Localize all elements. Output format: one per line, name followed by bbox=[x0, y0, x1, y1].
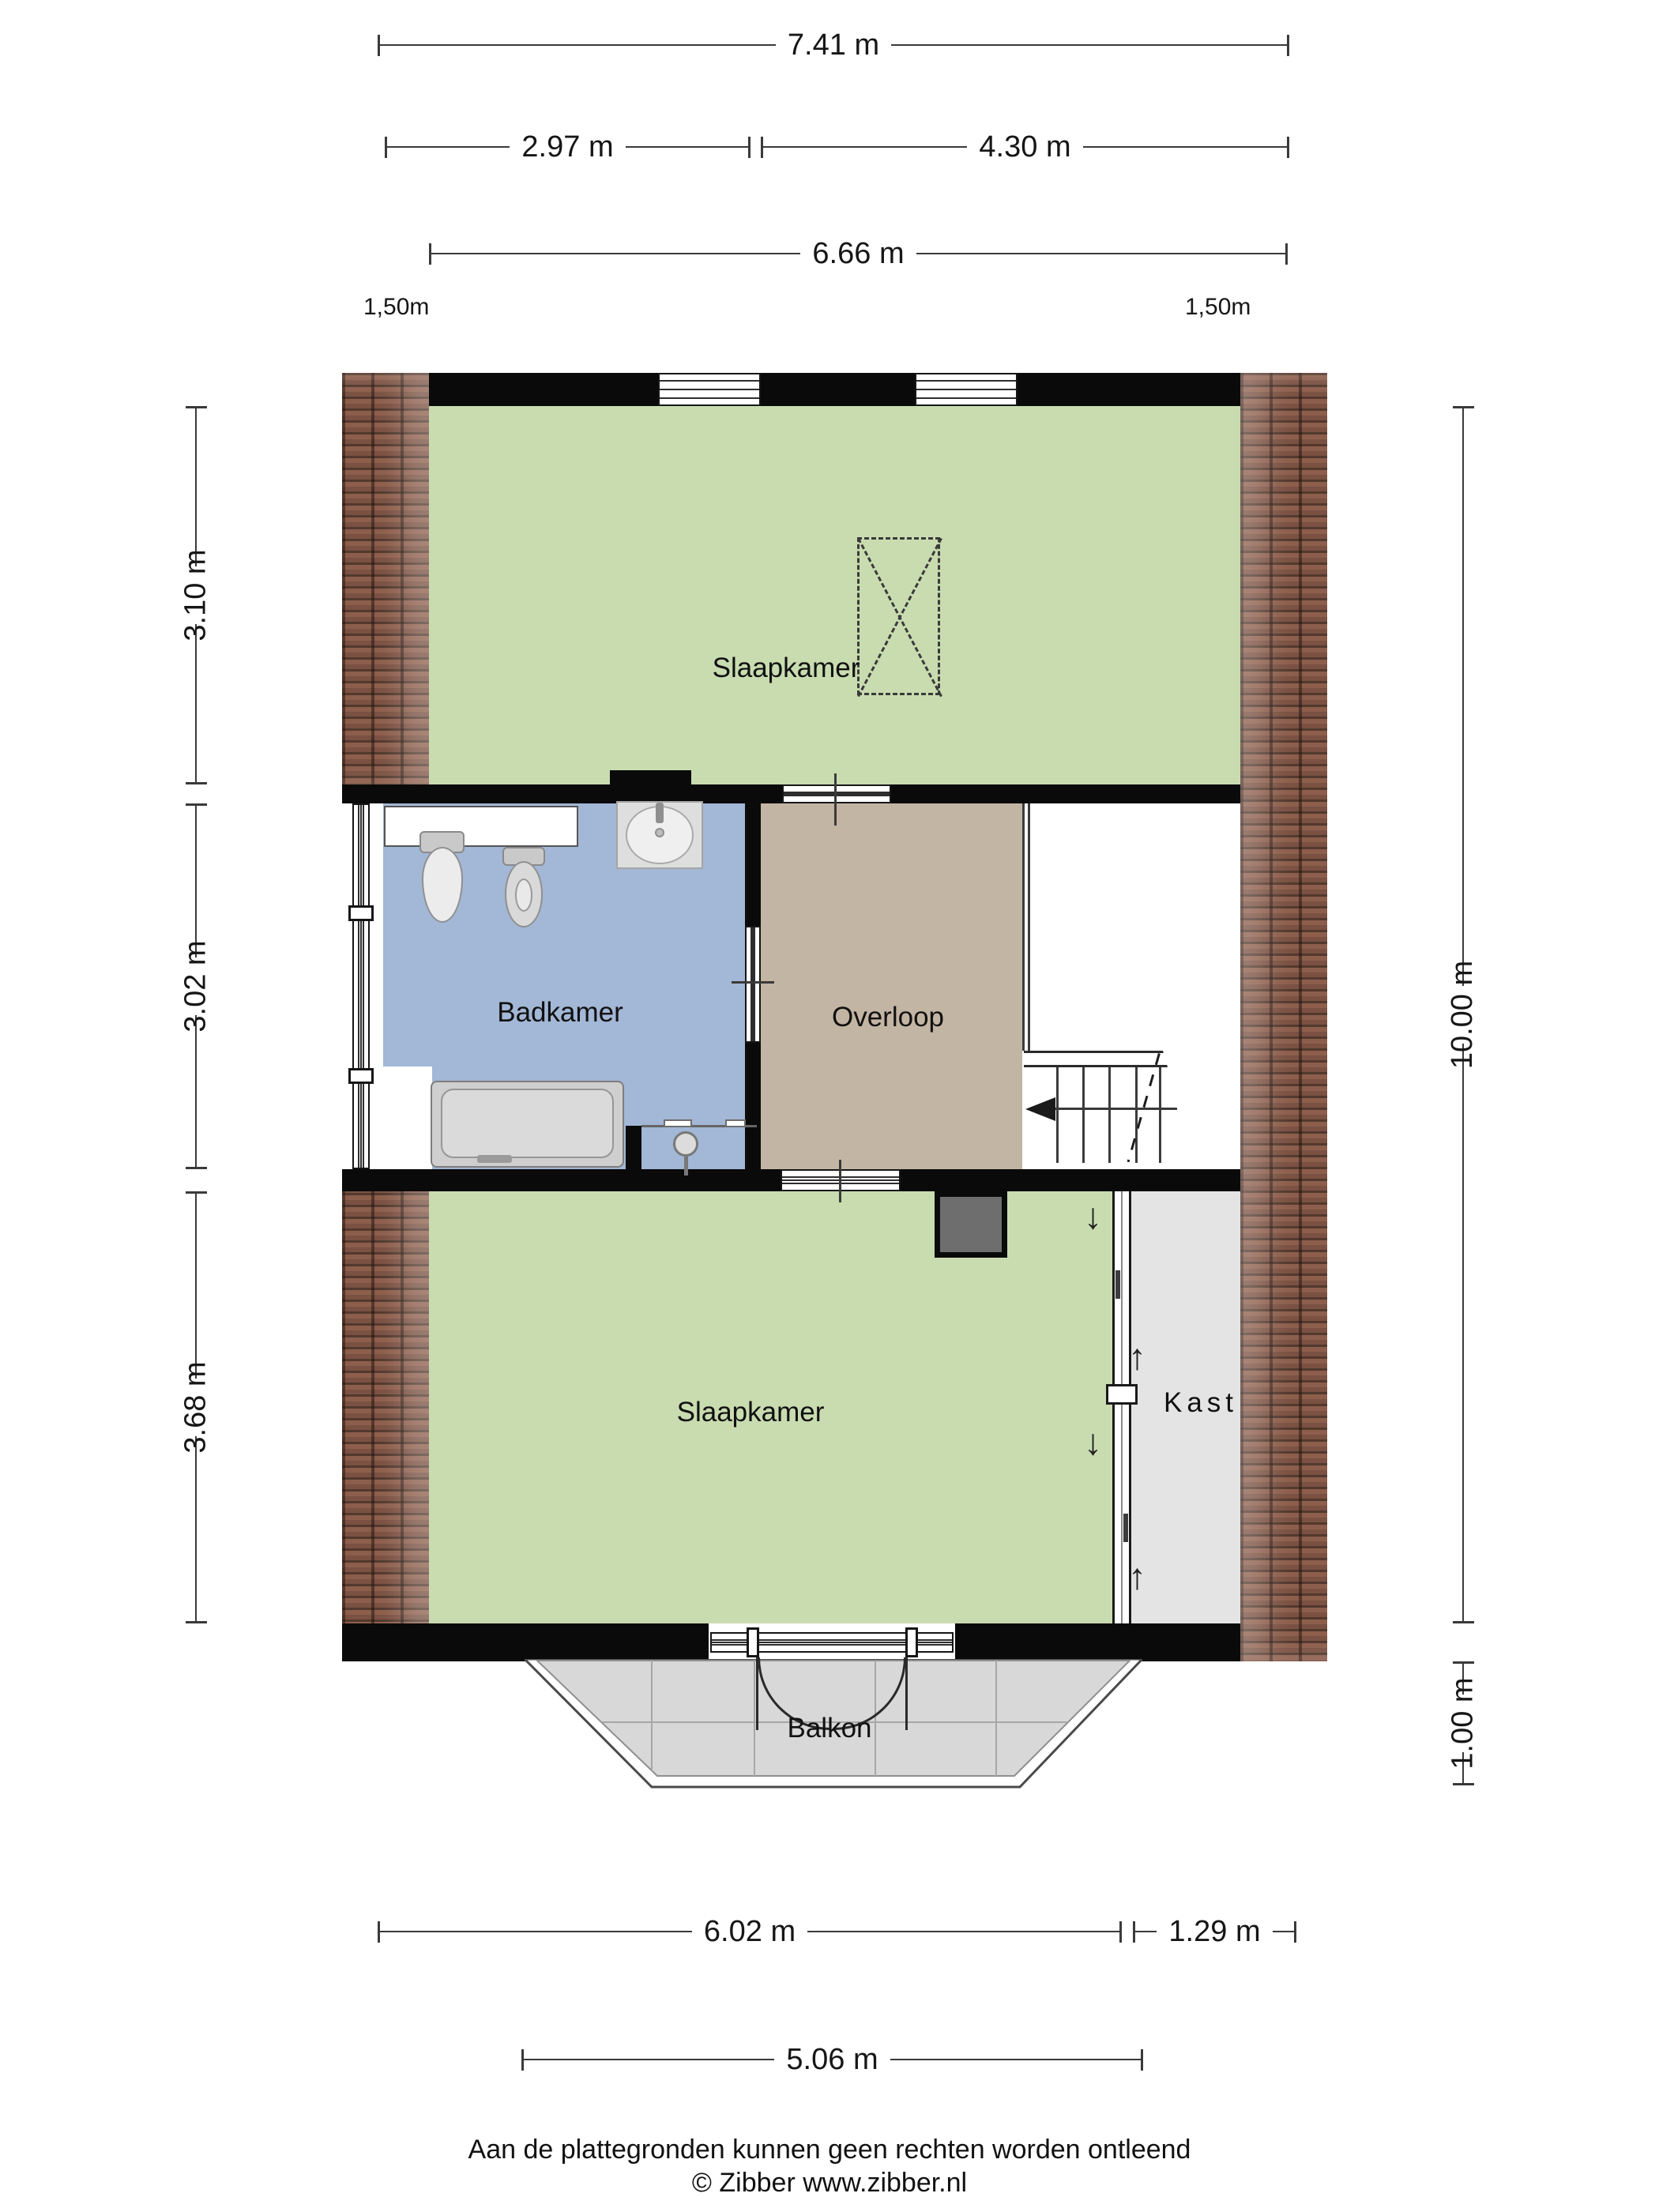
room-label-bedroom-bottom: Slaapkamer bbox=[592, 1397, 908, 1428]
dim-total-width: 7.41 m bbox=[378, 32, 1289, 58]
dim-label: 10.00 m bbox=[1435, 961, 1492, 1069]
wall-interior-2 bbox=[901, 1169, 1240, 1191]
stair-direction-line bbox=[1051, 1108, 1177, 1110]
wall-interior-1 bbox=[891, 784, 1240, 803]
room-label-bathroom: Badkamer bbox=[402, 997, 718, 1029]
window-mullion bbox=[348, 905, 374, 921]
dim-balcony-depth: 1.00 m bbox=[1450, 1661, 1477, 1785]
dim-inner-width: 6.66 m bbox=[429, 240, 1288, 267]
room-label-landing: Overloop bbox=[730, 1002, 1046, 1033]
dim-bottom-width: 6.02 m bbox=[378, 1918, 1122, 1945]
wall-top bbox=[761, 373, 915, 406]
stair-tread bbox=[1056, 1067, 1059, 1163]
wall-bathroom-landing bbox=[745, 1043, 761, 1169]
dim-label: 1.00 m bbox=[1435, 1677, 1492, 1769]
wall-top bbox=[1018, 373, 1240, 406]
wall-bathroom-landing bbox=[745, 803, 761, 926]
dim-left-section-width: 2.97 m bbox=[385, 134, 750, 160]
opening-tick bbox=[834, 773, 837, 826]
window-mullion bbox=[348, 1068, 374, 1084]
dim-bedroom-bottom-depth: 3.68 m bbox=[182, 1191, 209, 1623]
dim-label: 7.41 m bbox=[776, 28, 891, 62]
dim-label: 5.06 m bbox=[774, 2043, 890, 2077]
landing-top-glazing bbox=[782, 784, 891, 803]
wall-bottom bbox=[955, 1623, 1240, 1661]
shower-hose bbox=[684, 1155, 688, 1176]
stair-direction-arrow bbox=[1025, 1097, 1055, 1121]
stair-tread bbox=[1135, 1067, 1138, 1163]
floor-plan-page: 7.41 m 2.97 m 4.30 m 6.66 m 1,50m 1,50m … bbox=[0, 0, 1659, 2212]
wall-interior-2 bbox=[342, 1169, 781, 1191]
stair-tread bbox=[1159, 1067, 1161, 1163]
bathroom-counter bbox=[384, 806, 578, 847]
shower-stub-wall bbox=[626, 1126, 641, 1169]
opening-tick bbox=[732, 981, 774, 984]
wall-interior-1 bbox=[342, 784, 782, 803]
sink-faucet bbox=[656, 803, 664, 823]
footer-disclaimer: Aan de plattegronden kunnen geen rechten… bbox=[0, 2135, 1659, 2165]
bathroom-floor-recess bbox=[383, 1066, 432, 1169]
dim-label: 1.29 m bbox=[1157, 1915, 1272, 1949]
room-label-closet: Kast bbox=[1122, 1387, 1280, 1419]
bathtub-faucet bbox=[477, 1155, 512, 1163]
knee-wall-height-right: 1,50m bbox=[1185, 294, 1251, 321]
bidet-basin bbox=[515, 878, 532, 912]
slide-arrow-up-icon: ↑ bbox=[1128, 1558, 1146, 1594]
room-landing bbox=[761, 803, 1022, 1169]
bathtub-basin bbox=[441, 1089, 614, 1158]
stair-tread bbox=[1082, 1067, 1085, 1163]
dim-label: 6.02 m bbox=[692, 1915, 807, 1949]
dim-right-section-width: 4.30 m bbox=[761, 134, 1289, 160]
roof-brick-left-top bbox=[342, 373, 429, 791]
stair-handrail bbox=[1024, 1053, 1195, 1067]
chimney bbox=[935, 1191, 1007, 1258]
door-frame-mullion bbox=[905, 1627, 918, 1657]
room-bedroom-top bbox=[429, 406, 1240, 784]
sliding-door-handle bbox=[1115, 1270, 1120, 1299]
dim-label: 4.30 m bbox=[967, 130, 1082, 164]
dim-label: 6.66 m bbox=[800, 237, 916, 271]
wall-top bbox=[429, 373, 658, 406]
window-top-right bbox=[915, 373, 1018, 406]
footer-copyright: © Zibber www.zibber.nl bbox=[0, 2168, 1659, 2199]
door-frame-mullion bbox=[747, 1627, 759, 1657]
sliding-door-handle bbox=[1123, 1514, 1128, 1542]
dim-total-depth: 10.00 m bbox=[1450, 406, 1477, 1623]
wall-pier bbox=[610, 770, 691, 803]
dim-label: 2.97 m bbox=[510, 130, 625, 164]
shower-glass-handle bbox=[725, 1119, 746, 1127]
slide-arrow-up-icon: ↑ bbox=[1128, 1338, 1146, 1375]
window-top-left bbox=[658, 373, 761, 406]
opening-tick bbox=[839, 1160, 841, 1202]
slide-arrow-down-icon: ↓ bbox=[1084, 1198, 1102, 1234]
dim-label: 3.10 m bbox=[167, 549, 225, 641]
slide-arrow-down-icon: ↓ bbox=[1084, 1424, 1102, 1460]
bathroom-dormer-window bbox=[352, 803, 370, 1169]
roof-brick-right bbox=[1240, 373, 1327, 1661]
shower-glass-handle bbox=[664, 1119, 692, 1127]
dim-closet-width: 1.29 m bbox=[1133, 1918, 1296, 1945]
dim-balcony-width: 5.06 m bbox=[521, 2046, 1143, 2073]
dim-label: 3.02 m bbox=[167, 940, 225, 1032]
room-label-bedroom-top: Slaapkamer bbox=[628, 653, 944, 684]
knee-wall-height-left: 1,50m bbox=[363, 294, 429, 321]
dim-bedroom-top-depth: 3.10 m bbox=[182, 406, 209, 784]
wall-bottom bbox=[342, 1623, 709, 1661]
stair-tread bbox=[1108, 1067, 1111, 1163]
dim-label: 3.68 m bbox=[167, 1361, 225, 1453]
roof-brick-left-bottom bbox=[342, 1169, 429, 1661]
dim-middle-depth: 3.02 m bbox=[182, 803, 209, 1169]
shower-head-icon bbox=[673, 1131, 698, 1157]
sink-drain bbox=[655, 828, 664, 837]
room-label-balcony: Balkon bbox=[750, 1713, 908, 1744]
